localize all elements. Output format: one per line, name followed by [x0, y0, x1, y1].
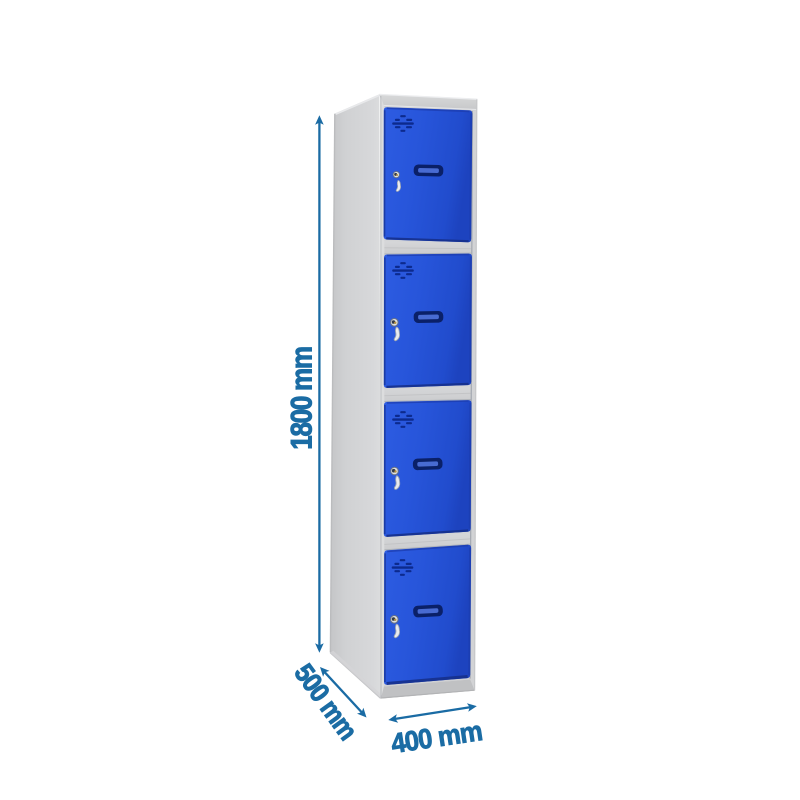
- svg-text:1800 mm: 1800 mm: [285, 347, 318, 450]
